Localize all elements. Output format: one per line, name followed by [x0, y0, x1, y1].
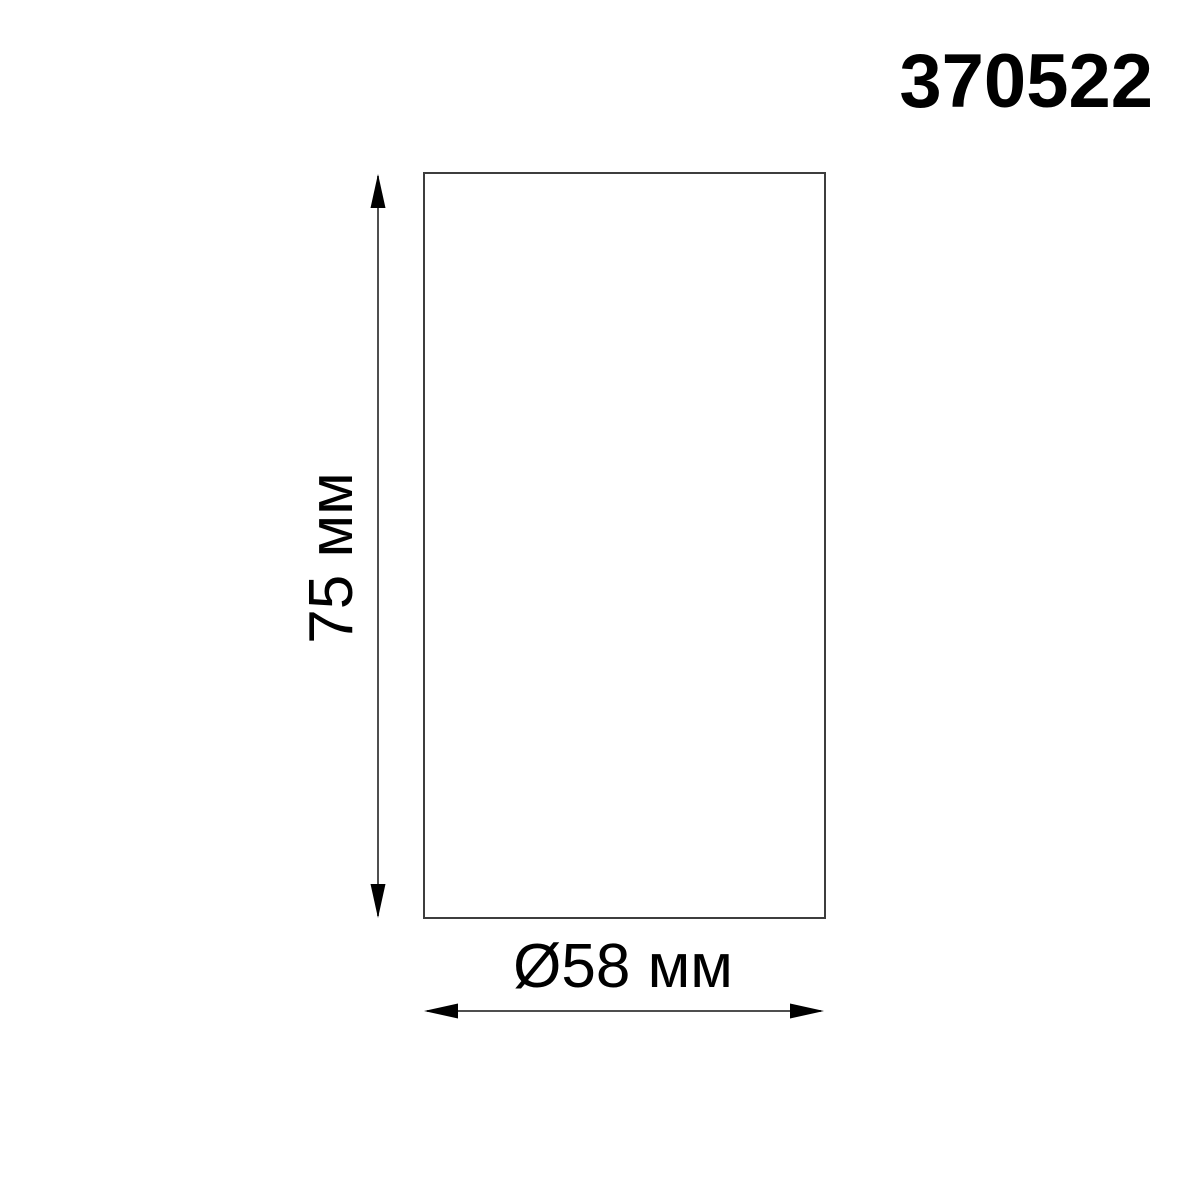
- dimension-drawing-layer: [0, 0, 1200, 1200]
- arrow-right-icon: [790, 1004, 824, 1019]
- fixture-body-outline: [424, 173, 825, 918]
- arrow-left-icon: [424, 1004, 458, 1019]
- height-dimension-label: 75 мм: [301, 472, 363, 643]
- diameter-dimension-label: Ø58 мм: [513, 936, 733, 998]
- arrow-down-icon: [371, 884, 386, 918]
- arrow-up-icon: [371, 174, 386, 208]
- technical-drawing: 370522 75 мм Ø58 мм: [0, 0, 1200, 1200]
